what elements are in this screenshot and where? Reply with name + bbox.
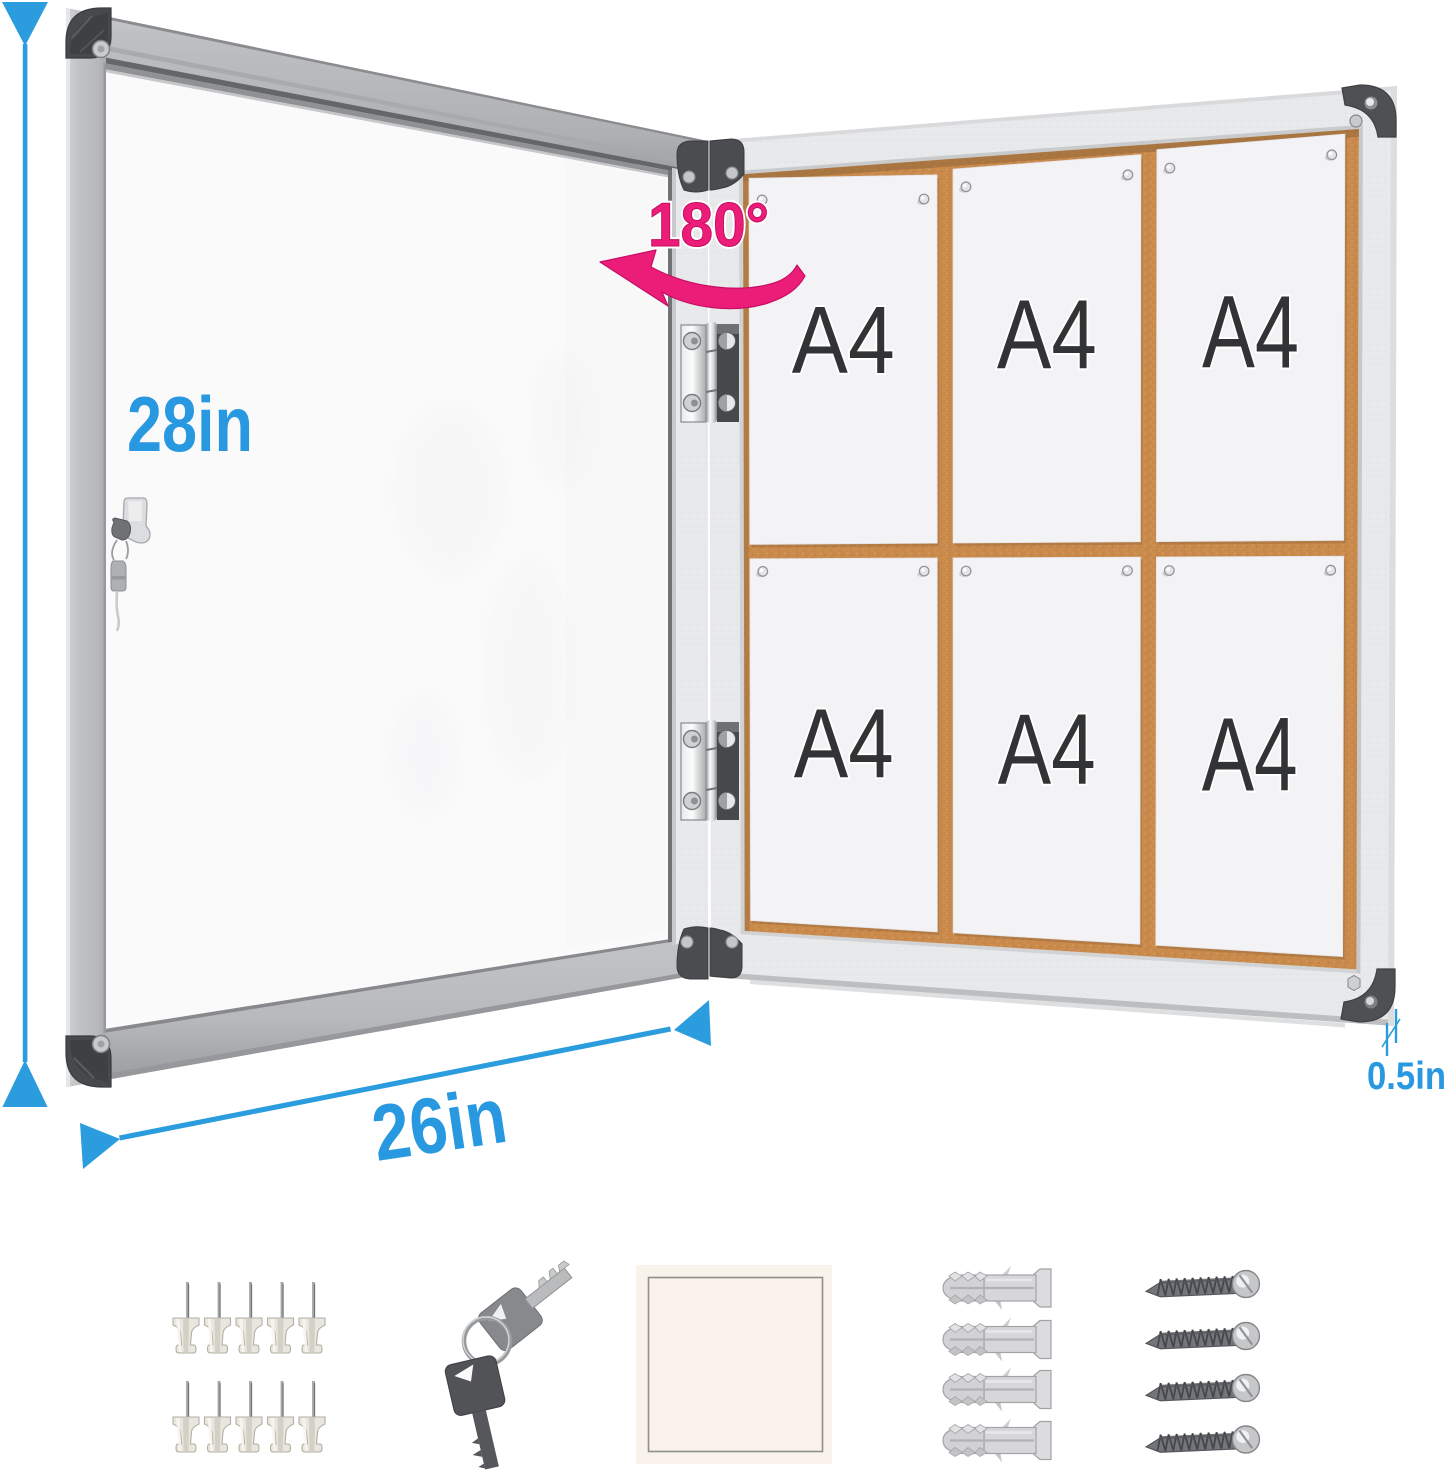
svg-text:A4: A4 xyxy=(794,689,894,799)
svg-text:180°: 180° xyxy=(648,191,769,260)
svg-text:26in: 26in xyxy=(366,1070,512,1178)
svg-text:A4: A4 xyxy=(792,287,895,394)
svg-text:A4: A4 xyxy=(997,280,1097,390)
svg-text:0.5in: 0.5in xyxy=(1367,1055,1445,1098)
svg-text:A4: A4 xyxy=(1202,696,1298,813)
svg-text:A4: A4 xyxy=(1202,275,1299,390)
svg-text:28in: 28in xyxy=(127,380,253,468)
svg-text:A4: A4 xyxy=(998,694,1096,806)
